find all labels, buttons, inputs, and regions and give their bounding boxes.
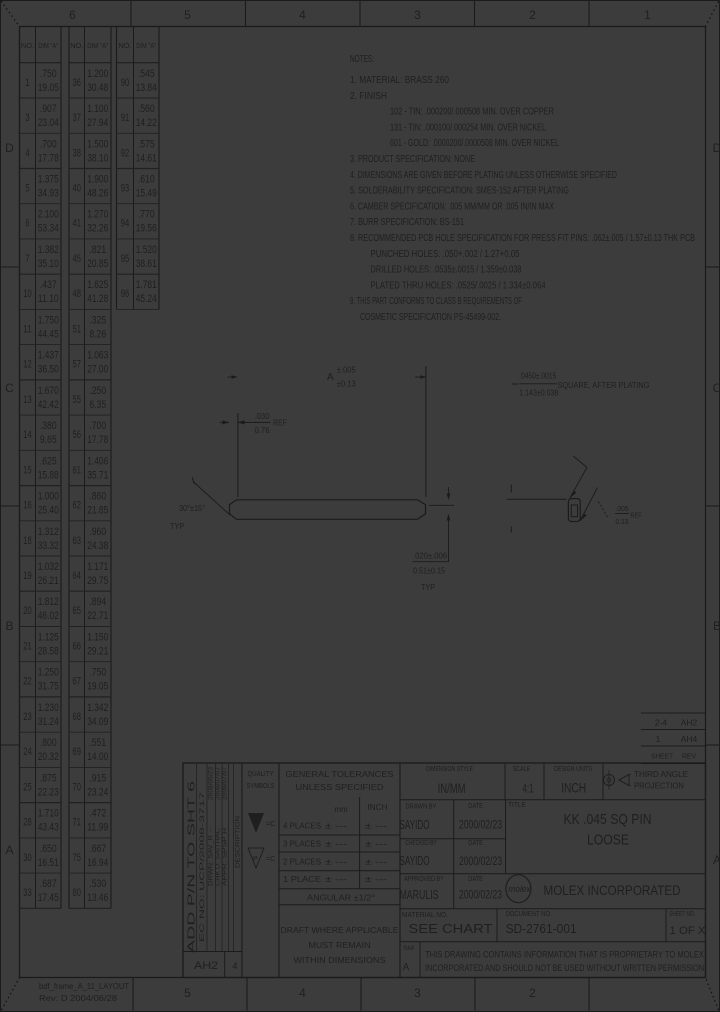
- svg-text:EC NO: UCP/2008-3717: EC NO: UCP/2008-3717: [199, 792, 206, 942]
- svg-text:DATE: DATE: [468, 840, 483, 847]
- svg-text:UNLESS SPECIFIED: UNLESS SPECIFIED: [296, 782, 384, 792]
- svg-text:4:1: 4:1: [523, 781, 534, 796]
- svg-text:63: 63: [73, 535, 81, 547]
- svg-text:4: 4: [299, 8, 306, 22]
- svg-text:APPROVED BY: APPROVED BY: [404, 876, 444, 883]
- svg-text:DRWN: SAV_R --: DRWN: SAV_R --: [208, 828, 215, 886]
- svg-text:6: 6: [69, 8, 76, 22]
- svg-text:75: 75: [73, 852, 81, 864]
- svg-text:13.84: 13.84: [136, 82, 157, 94]
- svg-text:22: 22: [23, 676, 31, 688]
- svg-text:20.85: 20.85: [87, 258, 108, 270]
- svg-text:.860: .860: [89, 491, 106, 503]
- svg-text:1.710: 1.710: [38, 808, 59, 820]
- svg-text:80: 80: [73, 887, 81, 899]
- svg-text:TITLE: TITLE: [508, 802, 526, 809]
- svg-text:CHECKED BY: CHECKED BY: [406, 840, 437, 847]
- svg-text:SYMBOLS: SYMBOLS: [247, 781, 275, 790]
- svg-text:20: 20: [23, 605, 31, 617]
- svg-text:53.34: 53.34: [38, 223, 59, 235]
- svg-text:.530: .530: [89, 878, 106, 890]
- svg-text:.770: .770: [138, 209, 155, 221]
- svg-text:TYP: TYP: [170, 522, 184, 531]
- svg-text:20.32: 20.32: [38, 751, 59, 763]
- svg-text:96: 96: [121, 288, 129, 300]
- svg-text:3: 3: [25, 112, 29, 124]
- svg-text:.700: .700: [89, 420, 106, 432]
- svg-text:1. MATERIAL: BRASS 260: 1. MATERIAL: BRASS 260: [350, 75, 449, 86]
- svg-text:1.625: 1.625: [87, 279, 108, 291]
- svg-text:.750: .750: [40, 68, 57, 80]
- svg-text:± ---: ± ---: [325, 858, 348, 867]
- svg-text:17.78: 17.78: [87, 434, 108, 446]
- svg-text:48: 48: [73, 288, 81, 300]
- svg-text:COSMETIC SPECIFICATION PS-4549: COSMETIC SPECIFICATION PS-45499-002.: [360, 312, 501, 323]
- svg-text:41: 41: [73, 218, 81, 230]
- svg-text:34.09: 34.09: [87, 716, 108, 728]
- svg-text:REF: REF: [273, 419, 287, 428]
- svg-text:30°±15°: 30°±15°: [179, 504, 205, 513]
- svg-text:MATERIAL NO.: MATERIAL NO.: [402, 912, 448, 919]
- svg-text:9.65: 9.65: [40, 434, 57, 446]
- svg-text:DIM "A": DIM "A": [38, 41, 58, 50]
- svg-text:102 - TIN: .000200/.000508 MIN: 102 - TIN: .000200/.000508 MIN. OVER COP…: [390, 107, 554, 118]
- svg-text:6.35: 6.35: [89, 399, 106, 411]
- svg-text:12: 12: [23, 359, 31, 371]
- svg-text:± ---: ± ---: [365, 822, 388, 831]
- svg-text:43.43: 43.43: [38, 822, 59, 834]
- svg-text:35.10: 35.10: [38, 258, 59, 270]
- svg-text:2 PLACES: 2 PLACES: [283, 858, 321, 867]
- svg-text:30.48: 30.48: [87, 82, 108, 94]
- svg-text:± ---: ± ---: [365, 840, 388, 849]
- svg-text:A: A: [403, 962, 410, 973]
- svg-text:601 - GOLD: .0000200/.0000508: 601 - GOLD: .0000200/.0000508 MIN. OVER …: [390, 138, 559, 149]
- svg-text:APPR: SPSP H: APPR: SPSP H: [222, 828, 229, 886]
- svg-text:1.781: 1.781: [136, 279, 157, 291]
- svg-text:64: 64: [73, 570, 81, 582]
- svg-text:.960: .960: [89, 526, 106, 538]
- svg-text:69: 69: [73, 746, 81, 758]
- svg-text:INCORPORATED AND SHOULD NOT BE: INCORPORATED AND SHOULD NOT BE USED WITH…: [425, 963, 704, 974]
- svg-text:AH4: AH4: [681, 734, 698, 744]
- svg-text:1.437: 1.437: [38, 350, 59, 362]
- svg-text:22.71: 22.71: [87, 610, 108, 622]
- svg-text:61: 61: [73, 464, 81, 476]
- svg-text:4. DIMENSIONS ARE GIVEN BEFORE: 4. DIMENSIONS ARE GIVEN BEFORE PLATING U…: [350, 170, 617, 181]
- svg-text:94: 94: [121, 218, 129, 230]
- svg-text:65: 65: [73, 605, 81, 617]
- svg-text:1.270: 1.270: [87, 209, 108, 221]
- svg-text:ADD P/N TO SHT 6: ADD P/N TO SHT 6: [186, 781, 198, 953]
- svg-text:1.230: 1.230: [38, 702, 59, 714]
- svg-text:.020±.006: .020±.006: [413, 552, 448, 561]
- svg-text:AH2: AH2: [681, 718, 698, 728]
- svg-text:1.250: 1.250: [38, 667, 59, 679]
- svg-text:17.78: 17.78: [38, 152, 59, 164]
- svg-text:1.670: 1.670: [38, 385, 59, 397]
- svg-text:.750: .750: [89, 667, 106, 679]
- svg-text:40: 40: [73, 183, 81, 195]
- svg-text:.030: .030: [255, 412, 271, 421]
- svg-text:31.24: 31.24: [38, 716, 59, 728]
- svg-text:45.24: 45.24: [136, 293, 157, 305]
- svg-text:41.28: 41.28: [87, 293, 108, 305]
- svg-text:NO.: NO.: [70, 41, 83, 50]
- svg-text:0.76: 0.76: [255, 426, 271, 435]
- svg-text:DATE: DATE: [468, 803, 483, 810]
- svg-text:2000/02/23: 2000/02/23: [459, 854, 502, 868]
- svg-text:11: 11: [23, 323, 31, 335]
- svg-text:4 PLACES: 4 PLACES: [283, 822, 321, 831]
- svg-text:SD-2761-001: SD-2761-001: [506, 921, 577, 936]
- svg-text:PROJECTION: PROJECTION: [634, 782, 684, 791]
- svg-text:±0.13: ±0.13: [337, 380, 357, 389]
- svg-text:28: 28: [23, 817, 31, 829]
- svg-text:.875: .875: [40, 772, 57, 784]
- svg-text:B: B: [5, 619, 13, 633]
- svg-text:NO.: NO.: [118, 41, 131, 50]
- svg-text:1.032: 1.032: [38, 561, 59, 573]
- svg-text:MOLEX INCORPORATED: MOLEX INCORPORATED: [544, 882, 681, 898]
- svg-text:=C: =C: [266, 821, 275, 828]
- svg-text:LOOSE: LOOSE: [587, 833, 629, 849]
- svg-text:PUNCHED HOLES: .050+.002 / 1.2: PUNCHED HOLES: .050+.002 / 1.27+0.05: [371, 249, 520, 260]
- svg-text:2.100: 2.100: [38, 209, 59, 221]
- svg-text:P: P: [253, 856, 258, 863]
- svg-text:MUST REMAIN: MUST REMAIN: [309, 940, 371, 950]
- svg-text:36: 36: [73, 77, 81, 89]
- svg-text:TYP: TYP: [421, 583, 435, 592]
- svg-text:D: D: [713, 141, 720, 155]
- svg-text:1: 1: [644, 8, 651, 22]
- svg-text:DIM "A": DIM "A": [87, 41, 108, 50]
- svg-text:14.22: 14.22: [136, 117, 157, 129]
- svg-text:55: 55: [73, 394, 81, 406]
- svg-text:.472: .472: [89, 808, 106, 820]
- svg-text:27.00: 27.00: [87, 364, 108, 376]
- svg-text:36.50: 36.50: [38, 364, 59, 376]
- svg-text:SHEET: SHEET: [651, 752, 673, 761]
- svg-text:35.71: 35.71: [87, 469, 108, 481]
- svg-text:0.51±0.15: 0.51±0.15: [413, 567, 445, 576]
- svg-text:8. RECOMMENDED PCB HOLE SPECIF: 8. RECOMMENDED PCB HOLE SPECIFICATION FO…: [350, 233, 695, 244]
- svg-text:2: 2: [529, 8, 536, 22]
- svg-text:±.005: ±.005: [337, 366, 357, 375]
- svg-text:1 OF X: 1 OF X: [670, 925, 707, 937]
- svg-text:.821: .821: [89, 244, 106, 256]
- svg-text:SHEET NO.: SHEET NO.: [669, 911, 695, 918]
- svg-text:1.125: 1.125: [38, 632, 59, 644]
- svg-text:ANGULAR ±1/2°: ANGULAR ±1/2°: [307, 893, 375, 903]
- svg-text:3: 3: [414, 986, 421, 1000]
- svg-text:17.45: 17.45: [38, 892, 59, 904]
- svg-text:.610: .610: [138, 174, 155, 186]
- svg-text:38: 38: [73, 147, 81, 159]
- svg-text:95: 95: [121, 253, 129, 265]
- svg-text:7. BURR SPECIFICATION: BS-151: 7. BURR SPECIFICATION: BS-151: [350, 217, 464, 228]
- svg-text:11.10: 11.10: [38, 293, 59, 305]
- svg-text:± ---: ± ---: [325, 840, 348, 849]
- svg-text:2. FINISH: 2. FINISH: [350, 91, 387, 102]
- svg-text:1.150: 1.150: [87, 632, 108, 644]
- svg-text:16.94: 16.94: [87, 857, 108, 869]
- svg-text:10: 10: [23, 288, 31, 300]
- svg-text:QUALITY: QUALITY: [248, 769, 274, 778]
- svg-text:.560: .560: [138, 103, 155, 115]
- svg-text:56: 56: [73, 429, 81, 441]
- svg-text:± ---: ± ---: [365, 858, 388, 867]
- svg-text:.380: .380: [40, 420, 57, 432]
- svg-text:5. SOLDERABILITY SPECIFICATION: 5. SOLDERABILITY SPECIFICATION: SMES-152…: [350, 186, 569, 197]
- svg-text:DIMENSION STYLE: DIMENSION STYLE: [426, 766, 473, 773]
- svg-text:SQUARE, AFTER PLATING: SQUARE, AFTER PLATING: [558, 380, 650, 390]
- svg-text:SCALE: SCALE: [513, 766, 531, 773]
- svg-text:5: 5: [184, 8, 191, 22]
- svg-text:NOTES:: NOTES:: [350, 54, 374, 65]
- svg-text:51: 51: [73, 323, 81, 335]
- svg-text:± ---: ± ---: [365, 875, 388, 884]
- svg-text:9. THIS PART CONFORMS TO CLASS: 9. THIS PART CONFORMS TO CLASS B REQUIRE…: [350, 296, 522, 307]
- svg-text:28.58: 28.58: [38, 646, 59, 658]
- svg-text:3 PLACES: 3 PLACES: [283, 840, 321, 849]
- svg-text:4: 4: [232, 961, 237, 971]
- svg-text:42.42: 42.42: [38, 399, 59, 411]
- svg-text:6. CAMBER SPECIFICATION: .005: 6. CAMBER SPECIFICATION: .005 MM/MM OR .…: [350, 201, 554, 212]
- svg-text:2000/02/23: 2000/02/23: [459, 818, 502, 832]
- svg-text:0.13: 0.13: [616, 517, 629, 526]
- svg-text:.700: .700: [40, 138, 57, 150]
- svg-text:.800: .800: [40, 737, 57, 749]
- svg-text:bdf_frame_A_11_LAYOUT: bdf_frame_A_11_LAYOUT: [39, 981, 129, 991]
- svg-text:A: A: [327, 372, 334, 383]
- svg-text:A: A: [713, 853, 720, 867]
- svg-text:SAYIDO: SAYIDO: [400, 817, 430, 832]
- svg-text:25.40: 25.40: [38, 505, 59, 517]
- svg-text:.437: .437: [40, 279, 57, 291]
- svg-text:131 - TIN: .000100/.000254 MIN: 131 - TIN: .000100/.000254 MIN. OVER NIC…: [390, 122, 546, 133]
- svg-text:.625: .625: [40, 455, 57, 467]
- svg-text:± ---: ± ---: [325, 822, 348, 831]
- svg-text:67: 67: [73, 676, 81, 688]
- svg-text:C: C: [713, 381, 720, 395]
- svg-text:.005: .005: [616, 504, 629, 513]
- svg-text:KK .045 SQ PIN: KK .045 SQ PIN: [564, 812, 652, 828]
- svg-text:19.05: 19.05: [87, 681, 108, 693]
- svg-text:1.500: 1.500: [87, 138, 108, 150]
- svg-text:SEE CHART: SEE CHART: [409, 921, 493, 936]
- svg-text:C: C: [5, 381, 14, 395]
- svg-text:46.02: 46.02: [38, 610, 59, 622]
- svg-text:2008/07/07: 2008/07/07: [222, 767, 229, 800]
- svg-text:21.85: 21.85: [87, 505, 108, 517]
- svg-text:1.750: 1.750: [38, 314, 59, 326]
- svg-text:3. PRODUCT SPECIFICATION: NONE: 3. PRODUCT SPECIFICATION: NONE: [350, 154, 475, 165]
- svg-text:8.26: 8.26: [89, 328, 106, 340]
- svg-text:DESCRIPTION: DESCRIPTION: [235, 816, 242, 868]
- svg-text:CHK'D: SAITHAC: CHK'D: SAITHAC: [215, 828, 222, 886]
- svg-text:70: 70: [73, 781, 81, 793]
- svg-text:PLATED THRU HOLES: .0525/.0025: PLATED THRU HOLES: .0525/.0025 / 1.334±0…: [371, 280, 546, 291]
- svg-text:66: 66: [73, 641, 81, 653]
- svg-text:24.38: 24.38: [87, 540, 108, 552]
- svg-text:15: 15: [23, 464, 31, 476]
- svg-text:THIRD ANGLE: THIRD ANGLE: [634, 770, 688, 779]
- svg-text:2008/07/07: 2008/07/07: [215, 767, 222, 800]
- svg-text:MARULIS: MARULIS: [400, 887, 439, 902]
- svg-text:1.382: 1.382: [38, 244, 59, 256]
- svg-text:DIM "A": DIM "A": [136, 41, 156, 50]
- svg-text:1.520: 1.520: [136, 244, 157, 256]
- svg-text:14.61: 14.61: [136, 152, 157, 164]
- svg-text:SM: SM: [403, 945, 414, 952]
- svg-text:.575: .575: [138, 138, 155, 150]
- svg-text:34.93: 34.93: [38, 188, 59, 200]
- svg-text:INCH: INCH: [368, 803, 388, 812]
- svg-text:32.26: 32.26: [87, 223, 108, 235]
- svg-text:31.75: 31.75: [38, 681, 59, 693]
- svg-text:2-4: 2-4: [655, 718, 668, 728]
- svg-text:11.99: 11.99: [87, 822, 108, 834]
- svg-text:.250: .250: [89, 385, 106, 397]
- svg-text:INCH: INCH: [561, 781, 586, 796]
- svg-text:DRAWN BY: DRAWN BY: [406, 804, 437, 811]
- svg-text:GENERAL TOLERANCES: GENERAL TOLERANCES: [286, 769, 394, 779]
- svg-text:REF: REF: [631, 511, 642, 520]
- svg-text:1.100: 1.100: [87, 103, 108, 115]
- svg-text:A: A: [5, 843, 13, 857]
- svg-text:27.94: 27.94: [87, 117, 108, 129]
- svg-text:.687: .687: [40, 878, 57, 890]
- svg-text:D: D: [5, 141, 14, 155]
- svg-text:.667: .667: [89, 843, 106, 855]
- svg-text:=C: =C: [266, 856, 275, 863]
- svg-text:19: 19: [23, 570, 31, 582]
- svg-text:mm: mm: [334, 805, 348, 814]
- svg-text:19.05: 19.05: [38, 82, 59, 94]
- svg-text:.325: .325: [89, 314, 106, 326]
- svg-text:SAYIDO: SAYIDO: [400, 853, 430, 868]
- svg-text:± ---: ± ---: [325, 875, 348, 884]
- svg-text:DOCUMENT NO.: DOCUMENT NO.: [506, 911, 552, 918]
- svg-text:THIS DRAWING CONTAINS INFORMAT: THIS DRAWING CONTAINS INFORMATION THAT I…: [425, 950, 705, 961]
- svg-text:90: 90: [121, 77, 129, 89]
- svg-text:25: 25: [23, 781, 31, 793]
- svg-text:23.24: 23.24: [87, 786, 108, 798]
- svg-text:.0450±.0015: .0450±.0015: [519, 372, 556, 381]
- svg-text:37: 37: [73, 112, 81, 124]
- svg-text:1.171: 1.171: [87, 561, 108, 573]
- svg-text:5: 5: [25, 183, 29, 195]
- svg-text:DRAFT WHERE APPLICABLE: DRAFT WHERE APPLICABLE: [281, 925, 399, 935]
- svg-text:WITHIN DIMENSIONS: WITHIN DIMENSIONS: [294, 955, 386, 965]
- svg-text:1.406: 1.406: [87, 455, 108, 467]
- svg-text:1 PLACE: 1 PLACE: [283, 875, 321, 884]
- svg-text:44.45: 44.45: [38, 328, 59, 340]
- svg-text:DATE: DATE: [468, 876, 483, 883]
- svg-text:Rev: D 2004/06/28: Rev: D 2004/06/28: [39, 993, 117, 1003]
- svg-text:24: 24: [23, 746, 31, 758]
- svg-text:14.00: 14.00: [87, 751, 108, 763]
- svg-text:48.26: 48.26: [87, 188, 108, 200]
- svg-text:4: 4: [299, 986, 306, 1000]
- svg-text:13.46: 13.46: [87, 892, 108, 904]
- svg-text:4: 4: [25, 147, 29, 159]
- svg-text:6: 6: [25, 218, 29, 230]
- svg-text:16: 16: [23, 500, 31, 512]
- svg-text:.650: .650: [40, 843, 57, 855]
- svg-text:19.56: 19.56: [136, 223, 157, 235]
- svg-text:29.75: 29.75: [87, 575, 108, 587]
- svg-text:2: 2: [529, 986, 536, 1000]
- svg-text:45: 45: [73, 253, 81, 265]
- svg-text:16.51: 16.51: [38, 857, 59, 869]
- svg-text:1.812: 1.812: [38, 596, 59, 608]
- svg-text:23: 23: [23, 711, 31, 723]
- svg-text:1.312: 1.312: [38, 526, 59, 538]
- svg-text:IN/MM: IN/MM: [438, 780, 466, 796]
- svg-text:1.900: 1.900: [87, 174, 108, 186]
- svg-text:1.063: 1.063: [87, 350, 108, 362]
- svg-text:29.21: 29.21: [87, 646, 108, 658]
- svg-text:15.49: 15.49: [136, 188, 157, 200]
- svg-text:91: 91: [121, 112, 129, 124]
- svg-text:molex: molex: [509, 884, 531, 894]
- svg-text:18: 18: [23, 535, 31, 547]
- svg-text:B: B: [713, 619, 720, 633]
- svg-text:DRILLED HOLES: .0535±.0015 / 1: DRILLED HOLES: .0535±.0015 / 1.359±0.038: [371, 265, 522, 276]
- svg-text:57: 57: [73, 359, 81, 371]
- svg-text:30: 30: [23, 852, 31, 864]
- svg-text:1.143±0.038: 1.143±0.038: [519, 389, 558, 398]
- svg-text:.907: .907: [40, 103, 57, 115]
- svg-text:.894: .894: [89, 596, 106, 608]
- svg-text:2008/06/23: 2008/06/23: [208, 767, 215, 800]
- svg-text:71: 71: [73, 817, 81, 829]
- svg-text:5: 5: [184, 986, 191, 1000]
- svg-text:.551: .551: [89, 737, 106, 749]
- svg-text:92: 92: [121, 147, 129, 159]
- svg-text:.545: .545: [138, 68, 155, 80]
- svg-text:1.342: 1.342: [87, 702, 108, 714]
- svg-text:33: 33: [23, 887, 31, 899]
- svg-text:13: 13: [23, 394, 31, 406]
- svg-text:15.88: 15.88: [38, 469, 59, 481]
- svg-text:2000/02/23: 2000/02/23: [459, 888, 502, 902]
- svg-text:23.04: 23.04: [38, 117, 59, 129]
- svg-text:1.200: 1.200: [87, 68, 108, 80]
- svg-text:NO.: NO.: [21, 41, 34, 50]
- svg-text:33.32: 33.32: [38, 540, 59, 552]
- svg-text:14: 14: [23, 429, 31, 441]
- svg-text:REV: REV: [682, 752, 696, 761]
- svg-text:1: 1: [656, 734, 661, 744]
- svg-text:93: 93: [121, 183, 129, 195]
- svg-text:7: 7: [25, 253, 29, 265]
- svg-text:1.375: 1.375: [38, 174, 59, 186]
- svg-text:38.61: 38.61: [136, 258, 157, 270]
- svg-text:3: 3: [414, 8, 421, 22]
- svg-text:22.23: 22.23: [38, 786, 59, 798]
- svg-text:1: 1: [25, 77, 29, 89]
- svg-text:1.000: 1.000: [38, 491, 59, 503]
- svg-text:38.10: 38.10: [87, 152, 108, 164]
- svg-text:AH2: AH2: [194, 960, 218, 972]
- svg-text:26.21: 26.21: [38, 575, 59, 587]
- svg-text:62: 62: [73, 500, 81, 512]
- svg-text:68: 68: [73, 711, 81, 723]
- svg-text:DESIGN UNITS: DESIGN UNITS: [554, 766, 592, 773]
